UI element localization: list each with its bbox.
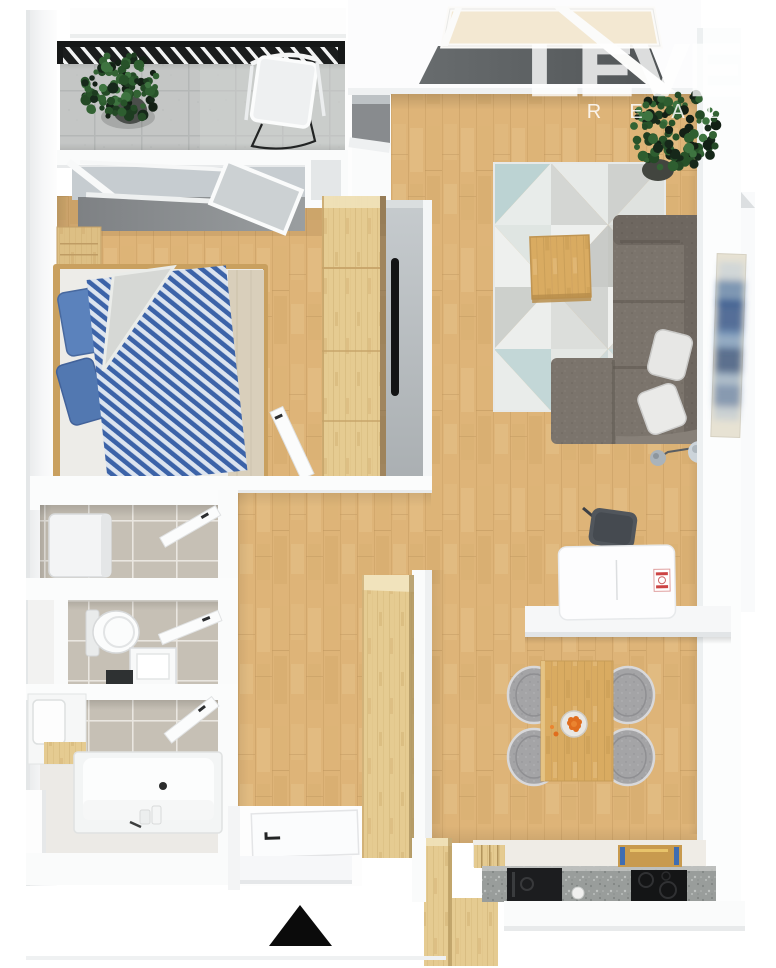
svg-text:L: L (706, 101, 717, 123)
svg-text:LEVEL: LEVEL (528, 31, 776, 111)
svg-text:E: E (629, 101, 642, 123)
svg-text:R: R (587, 101, 601, 123)
svg-text:A: A (671, 101, 685, 123)
